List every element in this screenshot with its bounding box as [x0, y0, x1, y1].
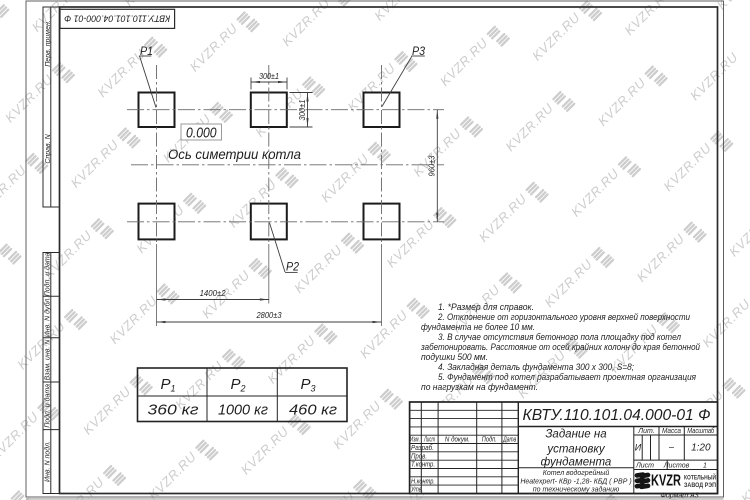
svg-text:N докум.: N докум.: [445, 436, 470, 444]
svg-text:подушки 500 мм.: подушки 500 мм.: [421, 352, 488, 362]
svg-text:Пров.: Пров.: [411, 453, 427, 460]
svg-text:фундамента: фундамента: [541, 456, 612, 468]
svg-text:1:20: 1:20: [691, 443, 711, 454]
svg-text:Н.контр.: Н.контр.: [411, 478, 435, 485]
svg-text:P2: P2: [286, 260, 299, 274]
svg-text:1. *Размер для справок.: 1. *Размер для справок.: [438, 302, 534, 312]
svg-text:Справ. N: Справ. N: [45, 133, 52, 163]
svg-text:Котел водогрейный: Котел водогрейный: [543, 469, 610, 477]
svg-text:Листов: Листов: [663, 463, 690, 470]
svg-text:0.000: 0.000: [186, 125, 217, 142]
svg-text:Лист: Лист: [423, 437, 435, 444]
svg-text:Инв. N подл.: Инв. N подл.: [44, 441, 52, 482]
svg-text:300±1: 300±1: [297, 99, 307, 120]
svg-text:1: 1: [703, 463, 707, 470]
svg-text:Т.контр.: Т.контр.: [411, 462, 435, 469]
svg-text:по техническому заданию: по техническому заданию: [533, 485, 620, 493]
svg-text:Масштаб: Масштаб: [687, 427, 715, 435]
svg-text:5. Фундамент под котел разраба: 5. Фундамент под котел разрабатывает про…: [438, 372, 696, 382]
svg-text:Лист: Лист: [635, 463, 654, 470]
svg-text:1400±2: 1400±2: [200, 288, 226, 298]
svg-text:–: –: [668, 442, 675, 452]
svg-text:KVZR.RU: KVZR.RU: [0, 253, 3, 307]
svg-text:KVZR.RU: KVZR.RU: [0, 409, 41, 463]
svg-text:Взам. инв. N: Взам. инв. N: [45, 339, 52, 381]
svg-text:Перв. примен.: Перв. примен.: [45, 20, 52, 67]
svg-text:360 кг: 360 кг: [148, 402, 200, 419]
svg-text:фундамента не более 10 мм.: фундамента не более 10 мм.: [421, 322, 535, 332]
svg-text:KVZR.RU: KVZR.RU: [714, 0, 750, 13]
svg-text:4. Закладная деталь фундамента: 4. Закладная деталь фундамента 300 х 300…: [438, 362, 634, 372]
svg-text:2. Отклонение от горизонтально: 2. Отклонение от горизонтального уровня …: [437, 312, 690, 322]
svg-text:ЗАВОД РЭП: ЗАВОД РЭП: [684, 483, 716, 489]
svg-text:KVZR.RU: KVZR.RU: [2, 71, 56, 125]
svg-text:КВТУ.110.101.04.000-01 Ф: КВТУ.110.101.04.000-01 Ф: [64, 12, 170, 23]
svg-text:2800±3: 2800±3: [256, 310, 282, 320]
svg-text:Изм.: Изм.: [410, 437, 420, 444]
svg-text:установку: установку: [546, 443, 606, 455]
svg-text:Задание на: Задание на: [545, 428, 606, 440]
svg-text:300±1: 300±1: [259, 71, 279, 81]
svg-text:Лит.: Лит.: [637, 428, 654, 435]
svg-text:КВТУ.110.101.04.000-01 Ф: КВТУ.110.101.04.000-01 Ф: [523, 407, 711, 424]
svg-text:забетонировать. Расстояние от: забетонировать. Расстояние от осей крайн…: [420, 342, 700, 352]
svg-text:Инв. N дубл.: Инв. N дубл.: [44, 297, 52, 338]
svg-text:Heatexpert- КВр -1,28- КБД ( Р: Heatexpert- КВр -1,28- КБД ( РВР ): [520, 479, 631, 486]
svg-text:И: И: [635, 443, 642, 453]
svg-text:1000 кг: 1000 кг: [218, 402, 269, 419]
svg-text:3. В случае отсутствия бетонно: 3. В случае отсутствия бетонного пола пл…: [438, 332, 682, 342]
svg-text:KVZR.RU: KVZR.RU: [738, 452, 750, 500]
svg-text:Формат А3: Формат А3: [660, 492, 698, 499]
svg-text:КОТЕЛЬНЫЙ: КОТЕЛЬНЫЙ: [684, 474, 716, 482]
svg-text:KVZR.RU: KVZR.RU: [0, 162, 29, 216]
svg-text:Подп. и дата: Подп. и дата: [44, 252, 52, 296]
svg-text:960±3: 960±3: [426, 155, 436, 176]
svg-text:Подп.: Подп.: [482, 436, 497, 444]
svg-text:Утв.: Утв.: [410, 487, 423, 494]
svg-text:460 кг: 460 кг: [289, 402, 338, 419]
svg-text:Ось симетрии котла: Ось симетрии котла: [168, 146, 301, 162]
svg-text:KVZR: KVZR: [651, 472, 681, 489]
svg-text:Дата: Дата: [503, 437, 517, 444]
svg-text:Подп. и дата: Подп. и дата: [44, 384, 52, 428]
svg-text:Разраб.: Разраб.: [411, 444, 434, 452]
svg-text:KVZR.RU: KVZR.RU: [726, 205, 750, 259]
svg-text:Масса: Масса: [662, 428, 681, 435]
svg-text:по нагрузкам на фундамент.: по нагрузкам на фундамент.: [421, 382, 538, 392]
